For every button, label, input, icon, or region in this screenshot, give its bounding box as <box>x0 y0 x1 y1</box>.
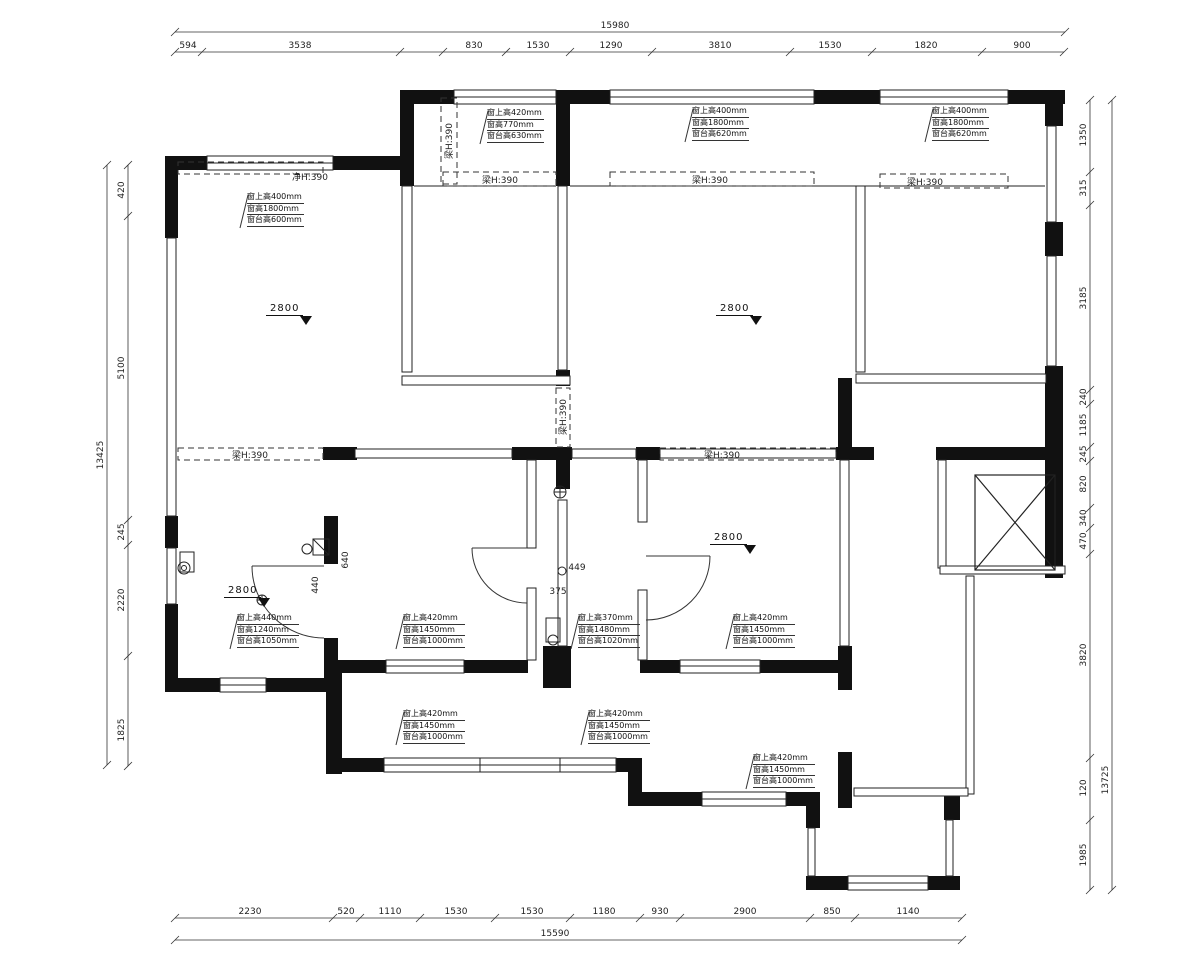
level-marker-triangle-icon <box>744 545 756 554</box>
beam-or-note-label: 梁H:390 <box>482 174 518 186</box>
window-annotation-line: 窗高770mm <box>487 120 544 132</box>
window-annotation-line: 窗上高400mm <box>932 106 989 118</box>
window-annotation-line: 窗高1450mm <box>733 625 795 637</box>
level-marker-value: 2800 <box>710 532 747 545</box>
dimension-label: 315 <box>1079 179 1089 196</box>
dimension-label: 850 <box>823 907 840 917</box>
level-marker: 2800 <box>710 532 747 545</box>
window <box>610 90 814 104</box>
dimension-label: 1530 <box>819 41 842 51</box>
level-marker-triangle-icon <box>258 598 270 607</box>
dimension-chain <box>124 161 132 770</box>
level-marker-value: 2800 <box>266 303 303 316</box>
dimension-label: 240 <box>1079 388 1089 405</box>
level-marker: 2800 <box>716 303 753 316</box>
window-annotation-line: 窗上高370mm <box>578 613 640 625</box>
window-annotation-line: 窗高1450mm <box>403 721 465 733</box>
window-annotation: 窗上高400mm窗高1800mm窗台高620mm <box>692 106 749 141</box>
window-annotation-line: 窗高1800mm <box>932 118 989 130</box>
dimension-label: 2220 <box>117 588 127 611</box>
dimension-label: 13725 <box>1101 766 1111 795</box>
window-annotation-line: 窗高1480mm <box>578 625 640 637</box>
door-arc <box>646 556 710 620</box>
dimension-chain <box>1086 96 1094 894</box>
window-annotation-line: 窗上高440mm <box>237 613 299 625</box>
window-annotation-line: 窗上高420mm <box>487 108 544 120</box>
window-annotation-line: 窗上高420mm <box>588 709 650 721</box>
beam-or-note-label: 梁H:390 <box>443 123 455 159</box>
window-annotation-line: 窗高1800mm <box>692 118 749 130</box>
dimension-label: 1825 <box>117 719 127 742</box>
dimension-label: 900 <box>1013 41 1030 51</box>
window <box>220 678 266 692</box>
shaft-x-box <box>975 475 1055 570</box>
window-annotation-line: 窗台高1000mm <box>588 732 650 744</box>
window-annotation-line: 窗高1450mm <box>403 625 465 637</box>
floorplan-svg: 1598059435388301530129038101530182090022… <box>0 0 1200 960</box>
dimension-label: 2900 <box>734 907 757 917</box>
dimension-label: 3185 <box>1079 287 1089 310</box>
dimension-label: 5100 <box>117 356 127 379</box>
window-annotation-line: 窗台高1000mm <box>403 636 465 648</box>
dimension-label: 245 <box>1079 445 1089 462</box>
window <box>386 660 464 673</box>
beam-or-note-label: 449 <box>568 563 585 573</box>
level-marker-value: 2800 <box>716 303 753 316</box>
window-annotation-line: 窗高1240mm <box>237 625 299 637</box>
window-annotation: 窗上高420mm窗高1450mm窗台高1000mm <box>588 709 650 744</box>
floor-plan-canvas: 1598059435388301530129038101530182090022… <box>0 0 1200 960</box>
window-annotation-line: 窗上高420mm <box>403 613 465 625</box>
dimension-label: 470 <box>1079 532 1089 549</box>
window-annotation: 窗上高400mm窗高1800mm窗台高600mm <box>247 192 304 227</box>
window-annotation-line: 窗上高420mm <box>403 709 465 721</box>
beam-or-note-label: 640 <box>341 551 351 568</box>
dimension-label: 3810 <box>709 41 732 51</box>
window-annotation: 窗上高420mm窗高1450mm窗台高1000mm <box>403 613 465 648</box>
dimension-chain <box>171 914 966 922</box>
window <box>384 758 616 772</box>
free-labels-layer: 净H:390梁H:390梁H:390梁H:390梁H:390梁H:390梁H:3… <box>232 123 943 597</box>
level-marker: 2800 <box>224 585 261 598</box>
window-annotation-line: 窗台高600mm <box>247 215 304 227</box>
level-marker-triangle-icon <box>300 316 312 325</box>
beam-or-note-label: 440 <box>311 576 321 593</box>
dimension-label: 1820 <box>915 41 938 51</box>
dimension-label: 15590 <box>541 929 570 939</box>
window-annotation-line: 窗高1450mm <box>753 765 815 777</box>
dimension-label: 3820 <box>1079 643 1089 666</box>
window-annotation: 窗上高370mm窗高1480mm窗台高1020mm <box>578 613 640 648</box>
window-annotation: 窗上高420mm窗高770mm窗台高630mm <box>487 108 544 143</box>
window-annotation-line: 窗高1800mm <box>247 204 304 216</box>
window-annotation: 窗上高400mm窗高1800mm窗台高620mm <box>932 106 989 141</box>
window <box>702 792 786 806</box>
beam-or-note-label: 375 <box>549 587 566 597</box>
window-annotation-line: 窗上高420mm <box>733 613 795 625</box>
window-annotation-line: 窗台高1000mm <box>753 776 815 788</box>
dimension-label: 930 <box>651 907 668 917</box>
beam-dashed-zones <box>178 98 1008 460</box>
window-annotation: 窗上高420mm窗高1450mm窗台高1000mm <box>753 753 815 788</box>
window-annotation: 窗上高420mm窗高1450mm窗台高1000mm <box>403 709 465 744</box>
level-marker: 2800 <box>266 303 303 316</box>
drain-icon <box>182 566 187 571</box>
window-annotation-line: 窗台高1000mm <box>733 636 795 648</box>
dimension-label: 2230 <box>239 907 262 917</box>
level-marker-triangle-icon <box>750 316 762 325</box>
dimension-label: 820 <box>1079 475 1089 492</box>
window-annotation-line: 窗台高1050mm <box>237 636 299 648</box>
dimension-label: 1530 <box>445 907 468 917</box>
dimension-label: 1180 <box>593 907 616 917</box>
dimension-label: 3538 <box>289 41 312 51</box>
window-annotation-line: 窗台高1020mm <box>578 636 640 648</box>
window-annotation-line: 窗上高420mm <box>753 753 815 765</box>
beam-or-note-label: 梁H:390 <box>907 176 943 188</box>
dimension-label: 1530 <box>527 41 550 51</box>
dimension-label: 340 <box>1079 509 1089 526</box>
window-annotation: 窗上高440mm窗高1240mm窗台高1050mm <box>237 613 299 648</box>
dimension-label: 245 <box>117 523 127 540</box>
dimension-label: 1185 <box>1079 414 1089 437</box>
dimension-label: 1290 <box>600 41 623 51</box>
window-annotation-line: 窗台高620mm <box>932 129 989 141</box>
dimension-label: 13425 <box>96 441 106 470</box>
dimension-label: 15980 <box>601 21 630 31</box>
window-annotation: 窗上高420mm窗高1450mm窗台高1000mm <box>733 613 795 648</box>
window-annotation-line: 窗上高400mm <box>692 106 749 118</box>
level-marker-value: 2800 <box>224 585 261 598</box>
window-annotation-line: 窗上高400mm <box>247 192 304 204</box>
window-annotation-line: 窗台高620mm <box>692 129 749 141</box>
dimension-label: 420 <box>117 181 127 198</box>
beam-or-note-label: 梁H:390 <box>692 174 728 186</box>
drain-icon <box>302 544 312 554</box>
window <box>680 660 760 673</box>
window <box>454 90 556 104</box>
beam-or-note-label: 梁H:390 <box>232 449 268 461</box>
dimension-label: 1140 <box>897 907 920 917</box>
window-annotation-line: 窗台高630mm <box>487 131 544 143</box>
dimension-label: 1110 <box>379 907 402 917</box>
dimension-label: 120 <box>1079 779 1089 796</box>
window-annotation-line: 窗台高1000mm <box>403 732 465 744</box>
dimension-label: 830 <box>465 41 482 51</box>
window <box>848 876 928 890</box>
beam-or-note-label: 净H:390 <box>292 171 328 183</box>
beam-or-note-label: 梁H:390 <box>557 399 569 435</box>
beam-or-note-label: 梁H:390 <box>704 449 740 461</box>
door-arc <box>472 548 527 603</box>
dimension-label: 1350 <box>1079 123 1089 146</box>
dimension-label: 1985 <box>1079 844 1089 867</box>
dimension-label: 594 <box>179 41 196 51</box>
dimension-label: 520 <box>337 907 354 917</box>
window-annotation-line: 窗高1450mm <box>588 721 650 733</box>
drain-icon <box>548 635 558 645</box>
dimension-label: 1530 <box>521 907 544 917</box>
window <box>880 90 1008 104</box>
window <box>207 156 333 170</box>
